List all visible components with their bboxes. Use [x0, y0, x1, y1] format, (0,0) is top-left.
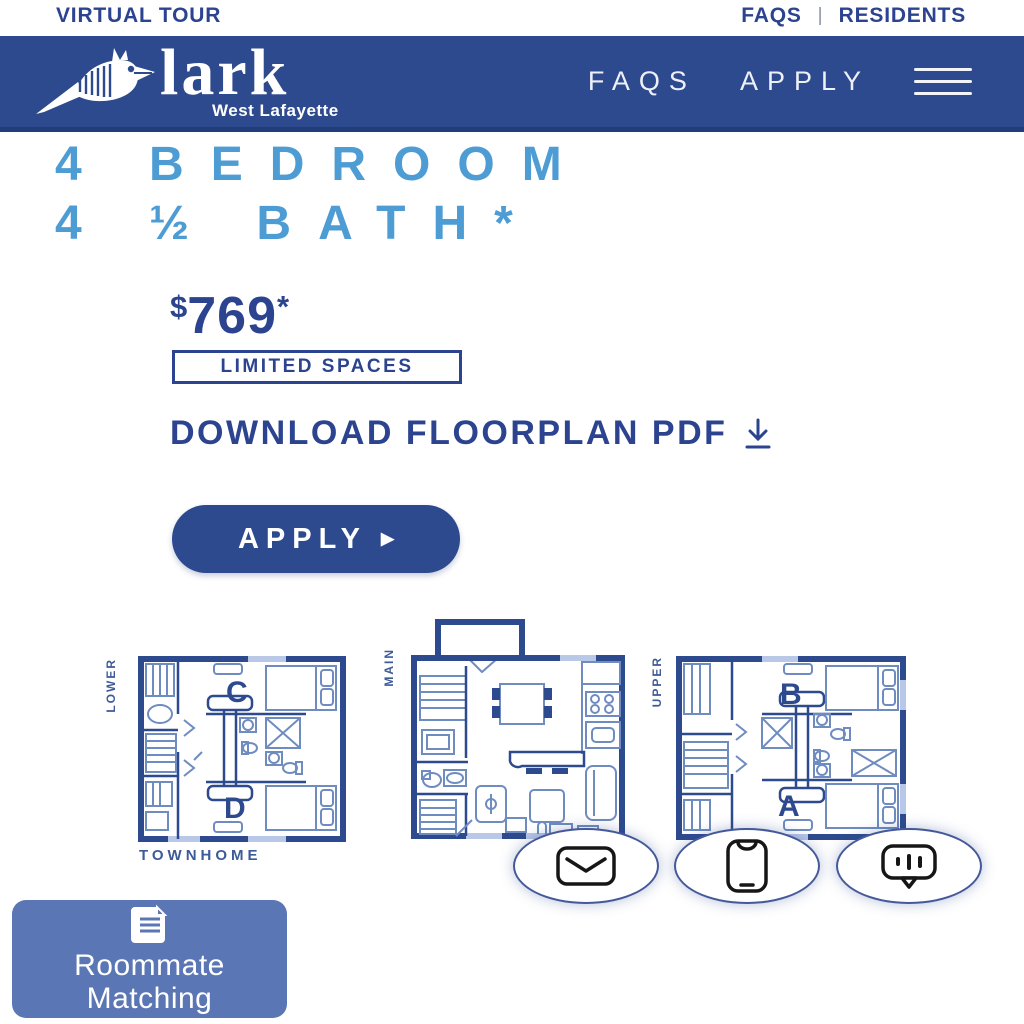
nav-apply-link[interactable]: APPLY: [740, 66, 870, 97]
logo-wordmark: lark West Lafayette: [160, 42, 339, 121]
room-label-a: A: [778, 790, 800, 823]
apply-button[interactable]: APPLY ▶: [172, 505, 460, 573]
room-label-c: C: [226, 676, 248, 709]
phone-icon: [725, 838, 769, 894]
price-currency: $: [170, 289, 187, 324]
roommate-matching-button[interactable]: Roommate Matching: [12, 900, 287, 1018]
header-nav: FAQS APPLY: [588, 36, 972, 127]
floorplan-lower-label: LOWER: [104, 658, 118, 713]
floorplan-main-label: MAIN: [382, 648, 396, 687]
roommate-matching-label: Roommate Matching: [74, 949, 225, 1015]
chat-bubble-icon: [880, 843, 938, 889]
price-asterisk: *: [277, 289, 289, 324]
download-icon: [743, 416, 773, 452]
limited-spaces-badge: LIMITED SPACES: [172, 350, 462, 384]
topbar-residents-link[interactable]: RESIDENTS: [839, 4, 966, 28]
contact-email-button[interactable]: [513, 828, 659, 904]
floorplan-upper-label: UPPER: [650, 656, 664, 707]
logo-brand-text: lark: [160, 42, 339, 105]
site-header: lark West Lafayette FAQS APPLY: [0, 36, 1024, 132]
lark-bird-icon: [34, 42, 156, 120]
contact-text-button[interactable]: [674, 828, 820, 904]
envelope-icon: [555, 845, 617, 887]
nav-faqs-link[interactable]: FAQS: [588, 66, 696, 97]
title-line-1: 4 BEDROOM: [55, 136, 589, 195]
price: $769*: [170, 286, 289, 346]
top-utility-right: FAQS | RESIDENTS: [741, 4, 966, 28]
page-title: 4 BEDROOM 4 ½ BATH*: [55, 136, 589, 253]
logo-location-text: West Lafayette: [212, 101, 339, 121]
apply-button-label: APPLY: [238, 523, 367, 556]
room-label-b: B: [780, 678, 802, 711]
hamburger-icon[interactable]: [914, 68, 972, 95]
topbar-faqs-link[interactable]: FAQS: [741, 4, 801, 28]
floorplan-upper-svg: B A: [676, 656, 906, 840]
townhome-caption: TOWNHOME: [139, 847, 262, 864]
room-label-d: D: [224, 792, 246, 825]
play-arrow-icon: ▶: [381, 529, 394, 549]
contact-chat-button[interactable]: [836, 828, 982, 904]
price-value: 769: [187, 287, 277, 345]
topbar-divider: |: [818, 5, 823, 27]
lark-logo[interactable]: lark West Lafayette: [34, 42, 339, 121]
floorplan-lower-svg: C D: [138, 656, 346, 842]
download-link-label: DOWNLOAD FLOORPLAN PDF: [170, 414, 727, 453]
top-utility-bar: VIRTUAL TOUR FAQS | RESIDENTS: [0, 0, 1024, 36]
virtual-tour-link[interactable]: VIRTUAL TOUR: [56, 4, 221, 28]
document-icon: [131, 903, 169, 943]
title-line-2: 4 ½ BATH*: [55, 195, 589, 254]
floorplan-main-svg: [410, 618, 626, 840]
download-floorplan-link[interactable]: DOWNLOAD FLOORPLAN PDF: [170, 414, 773, 453]
